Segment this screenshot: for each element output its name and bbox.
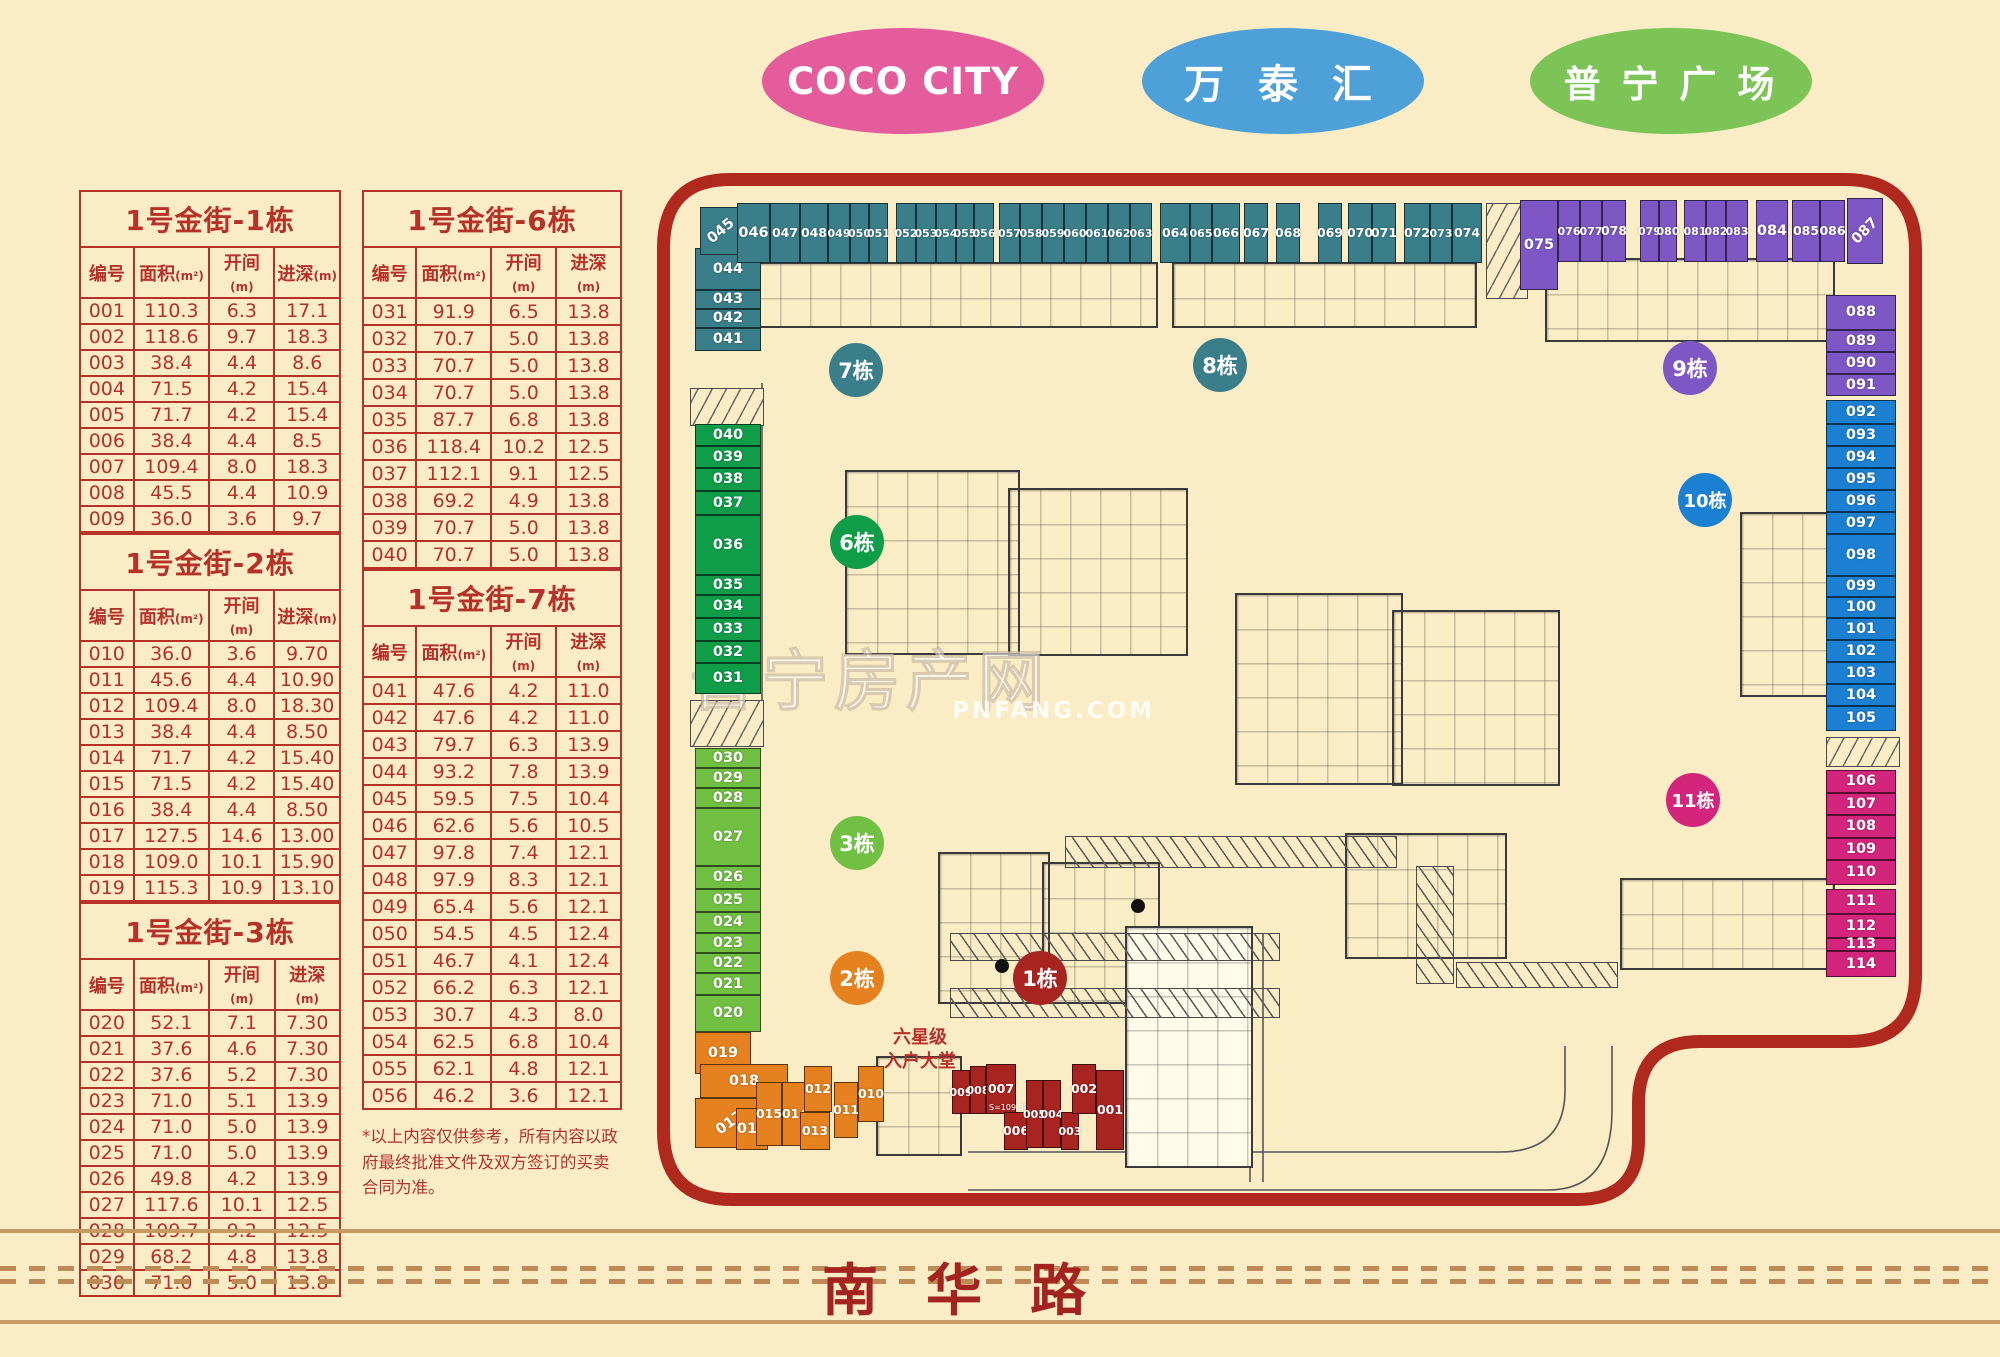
table-row: 02649.84.213.9 <box>80 1166 340 1192</box>
table-row: 04070.75.013.8 <box>363 541 621 568</box>
table-row: 019115.310.913.10 <box>80 875 340 901</box>
table-cell: 15.40 <box>274 745 340 771</box>
table-row: 03470.75.013.8 <box>363 379 621 406</box>
shop-unit-047: 047 <box>770 203 800 263</box>
building-footprint <box>1740 512 1832 697</box>
shop-unit-048: 048 <box>800 203 828 263</box>
shop-unit-041: 041 <box>695 328 761 351</box>
column-header: 进深(m) <box>556 626 621 677</box>
shop-unit-060: 060 <box>1064 203 1086 263</box>
shop-unit-081: 081 <box>1684 200 1706 262</box>
column-header: 进深(m) <box>275 959 340 1010</box>
column-header: 编号 <box>363 626 416 677</box>
table-cell: 18.30 <box>274 693 340 719</box>
shop-unit-058: 058 <box>1020 203 1042 263</box>
shop-unit-number: 111 <box>1846 894 1876 909</box>
table-cell: 46.2 <box>416 1082 491 1109</box>
table-row: 01338.44.48.50 <box>80 719 340 745</box>
table-cell: 4.5 <box>491 920 556 947</box>
building-circle-b8: 8栋 <box>1193 338 1247 392</box>
shop-unit-number: 100 <box>1846 600 1876 615</box>
table-cell: 37.6 <box>134 1036 210 1062</box>
table-cell: 45.6 <box>134 667 209 693</box>
table-cell: 62.6 <box>416 812 491 839</box>
table-cell: 13.10 <box>274 875 340 901</box>
shop-unit-number: 010 <box>858 1088 884 1101</box>
table-cell: 15.40 <box>274 771 340 797</box>
table-cell: 8.50 <box>274 797 340 823</box>
table-cell: 70.7 <box>416 379 491 406</box>
table-cell: 12.1 <box>556 893 621 920</box>
table-cell: 7.8 <box>491 758 556 785</box>
shop-unit-064: 064 <box>1160 203 1190 263</box>
table-cell: 46.7 <box>416 947 491 974</box>
lobby-line1: 六星级 <box>860 1026 980 1050</box>
table-cell: 71.0 <box>134 1088 210 1114</box>
table-cell: 13.9 <box>556 731 621 758</box>
table-row: 05146.74.112.4 <box>363 947 621 974</box>
shop-unit-number: 019 <box>708 1046 738 1061</box>
building-footprint <box>1620 878 1835 970</box>
shop-unit-035: 035 <box>695 575 761 595</box>
shop-unit-number: 060 <box>1064 228 1087 239</box>
table-cell: 4.1 <box>491 947 556 974</box>
table-cell: 040 <box>363 541 416 568</box>
table-cell: 93.2 <box>416 758 491 785</box>
shop-unit-number: 082 <box>1705 226 1728 237</box>
table-cell: 12.1 <box>556 974 621 1001</box>
table-cell: 54.5 <box>416 920 491 947</box>
table-cell: 052 <box>363 974 416 1001</box>
table-cell: 034 <box>363 379 416 406</box>
building-circle-label: 10栋 <box>1683 487 1726 513</box>
table-row: 02371.05.113.9 <box>80 1088 340 1114</box>
table-cell: 65.4 <box>416 893 491 920</box>
table-row: 002118.69.718.3 <box>80 324 340 350</box>
table-cell: 12.1 <box>556 1082 621 1109</box>
shop-unit-023: 023 <box>695 933 761 953</box>
table-row: 04897.98.312.1 <box>363 866 621 893</box>
table-cell: 10.4 <box>556 785 621 812</box>
table-cell: 15.4 <box>274 402 340 428</box>
table-cell: 5.0 <box>209 1114 274 1140</box>
shop-unit-number: 031 <box>713 671 743 686</box>
table-row: 04965.45.612.1 <box>363 893 621 920</box>
shop-unit-number: 058 <box>1020 228 1043 239</box>
table-cell: 91.9 <box>416 298 491 325</box>
table-cell: 13.8 <box>556 406 621 433</box>
building-footprint <box>1545 258 1835 342</box>
table-cell: 10.9 <box>209 875 274 901</box>
table-cell: 47.6 <box>416 704 491 731</box>
shop-unit-number: 097 <box>1846 516 1876 531</box>
table-cell: 38.4 <box>134 350 210 376</box>
shop-unit-number: 074 <box>1454 227 1480 240</box>
table-row: 01036.03.69.70 <box>80 641 340 667</box>
table-cell: 4.2 <box>209 376 274 402</box>
table-cell: 014 <box>80 745 134 771</box>
shop-unit-number: 063 <box>1130 228 1153 239</box>
landmark-label: 万 泰 汇 <box>1184 52 1382 110</box>
shop-unit-029: 029 <box>695 768 761 788</box>
tables-column-mid: 1号金街-6栋编号面积(m²)开间(m)进深(m)03191.96.513.80… <box>362 190 622 1201</box>
shop-unit-number: 021 <box>713 977 743 992</box>
shop-unit-087: 087 <box>1847 198 1883 264</box>
shop-unit-103: 103 <box>1826 662 1896 684</box>
table-cell: 001 <box>80 298 134 324</box>
shop-unit-011: 011 <box>834 1082 858 1138</box>
table-row: 04797.87.412.1 <box>363 839 621 866</box>
table-cell: 10.90 <box>274 667 340 693</box>
shop-unit-015: 015 <box>756 1082 782 1146</box>
table-cell: 117.6 <box>134 1192 210 1218</box>
table-row: 03191.96.513.8 <box>363 298 621 325</box>
shop-unit-010: 010 <box>858 1066 884 1122</box>
shop-unit-number: 099 <box>1846 579 1876 594</box>
shop-unit-number: 033 <box>713 622 743 637</box>
building-circle-label: 11栋 <box>1671 787 1714 813</box>
table-cell: 38.4 <box>134 428 210 454</box>
table-cell: 6.3 <box>491 974 556 1001</box>
table-row: 04247.64.211.0 <box>363 704 621 731</box>
ramp <box>690 388 764 426</box>
table-cell: 13.8 <box>556 325 621 352</box>
table-cell: 051 <box>363 947 416 974</box>
shop-unit-number: 037 <box>713 496 743 511</box>
shop-unit-083: 083 <box>1726 200 1748 262</box>
column-header: 面积(m²) <box>416 247 491 298</box>
shop-unit-number: 035 <box>713 578 743 593</box>
table-cell: 4.6 <box>209 1036 274 1062</box>
table-row: 017127.514.613.00 <box>80 823 340 849</box>
shop-unit-008: 008 <box>970 1066 986 1114</box>
shop-unit-number: 070 <box>1347 227 1373 240</box>
table-row: 01471.74.215.40 <box>80 745 340 771</box>
table-cell: 056 <box>363 1082 416 1109</box>
table-cell: 5.6 <box>491 893 556 920</box>
shop-unit-number: 109 <box>1846 842 1876 857</box>
shop-unit-114: 114 <box>1826 951 1896 977</box>
table-row: 03869.24.913.8 <box>363 487 621 514</box>
table-cell: 6.5 <box>491 298 556 325</box>
shop-unit-091: 091 <box>1826 374 1896 396</box>
table-cell: 13.8 <box>556 352 621 379</box>
table-cell: 008 <box>80 480 134 506</box>
table-cell: 118.6 <box>134 324 210 350</box>
shop-unit-033: 033 <box>695 618 761 641</box>
parking-hatch <box>950 933 1280 961</box>
table-cell: 049 <box>363 893 416 920</box>
table-cell: 38.4 <box>134 719 209 745</box>
shop-unit-number: 018 <box>729 1074 759 1089</box>
table-cell: 4.2 <box>209 402 274 428</box>
shop-unit-number: 036 <box>713 538 743 553</box>
parking-hatch <box>1065 836 1397 868</box>
shop-unit-093: 093 <box>1826 424 1896 446</box>
shop-unit-number: 026 <box>713 870 743 885</box>
shop-unit-065: 065 <box>1190 203 1212 263</box>
table-cell: 4.2 <box>491 677 556 704</box>
table-cell: 127.5 <box>134 823 209 849</box>
shop-unit-number: 027 <box>713 830 743 845</box>
table-cell: 11.0 <box>556 677 621 704</box>
shop-unit-number: 072 <box>1404 227 1430 240</box>
shop-unit-number: 091 <box>1846 378 1876 393</box>
table-cell: 4.4 <box>209 350 274 376</box>
table-cell: 62.1 <box>416 1055 491 1082</box>
shop-unit-038: 038 <box>695 468 761 491</box>
table-cell: 4.4 <box>209 797 274 823</box>
table-cell: 118.4 <box>416 433 491 460</box>
table-cell: 71.5 <box>134 771 209 797</box>
column-header: 面积(m²) <box>416 626 491 677</box>
table-row: 02237.65.27.30 <box>80 1062 340 1088</box>
building-circle-b11: 11栋 <box>1666 773 1720 827</box>
table-row: 02471.05.013.9 <box>80 1114 340 1140</box>
table-cell: 050 <box>363 920 416 947</box>
shop-unit-022: 022 <box>695 953 761 973</box>
table-cell: 109.4 <box>134 454 210 480</box>
table-cell: 015 <box>80 771 134 797</box>
table-cell: 007 <box>80 454 134 480</box>
shop-unit-071: 071 <box>1372 203 1396 263</box>
shop-unit-number: 096 <box>1846 494 1876 509</box>
table-cell: 66.2 <box>416 974 491 1001</box>
shop-unit-110: 110 <box>1826 860 1896 885</box>
table-cell: 9.7 <box>274 506 340 532</box>
table-cell: 4.2 <box>209 771 274 797</box>
column-header: 编号 <box>80 590 134 641</box>
table-row: 02571.05.013.9 <box>80 1140 340 1166</box>
building-footprint <box>1235 593 1403 785</box>
building-circle-label: 8栋 <box>1202 350 1238 380</box>
table-cell: 5.0 <box>491 541 556 568</box>
shop-unit-113: 113 <box>1826 938 1896 951</box>
shop-unit-number: 024 <box>713 915 743 930</box>
table-cell: 016 <box>80 797 134 823</box>
building-circle-label: 2栋 <box>839 963 875 993</box>
table-title: 1号金街-1栋 <box>79 190 341 246</box>
landmark-label: 普 宁 广 场 <box>1564 54 1779 108</box>
landmark-coco-city: COCO CITY <box>762 28 1044 134</box>
table-cell: 055 <box>363 1055 416 1082</box>
table-cell: 027 <box>80 1192 134 1218</box>
table-cell: 053 <box>363 1001 416 1028</box>
disclaimer-footnote: *以上内容仅供参考，所有内容以政府最终批准文件及双方签订的买卖合同为准。 <box>362 1124 622 1201</box>
table-cell: 7.30 <box>275 1010 340 1036</box>
road-name: 南华路 <box>822 1246 1134 1327</box>
building-circle-b1: 1栋 <box>1013 951 1067 1005</box>
table-cell: 12.5 <box>275 1192 340 1218</box>
table-row: 036118.410.212.5 <box>363 433 621 460</box>
table-cell: 041 <box>363 677 416 704</box>
table-cell: 3.6 <box>491 1082 556 1109</box>
building-circle-label: 7栋 <box>838 355 874 385</box>
shop-unit-number: 088 <box>1846 305 1876 320</box>
table-cell: 18.3 <box>274 454 340 480</box>
table-row: 04147.64.211.0 <box>363 677 621 704</box>
table-row: 018109.010.115.90 <box>80 849 340 875</box>
table-cell: 70.7 <box>416 352 491 379</box>
table-cell: 69.2 <box>416 487 491 514</box>
shop-unit-number: 083 <box>1726 226 1749 237</box>
shop-unit-096: 096 <box>1826 490 1896 512</box>
column-header: 编号 <box>80 959 134 1010</box>
table-cell: 3.6 <box>209 641 274 667</box>
shop-unit-051: 051 <box>869 203 888 263</box>
table-row: 03970.75.013.8 <box>363 514 621 541</box>
column-header: 开间(m) <box>209 590 274 641</box>
shop-unit-057: 057 <box>999 203 1020 263</box>
table-cell: 17.1 <box>274 298 340 324</box>
shop-unit-number: 025 <box>713 893 743 908</box>
shop-unit-number: 102 <box>1846 644 1876 659</box>
building-footprint <box>1392 610 1560 786</box>
table-row: 04559.57.510.4 <box>363 785 621 812</box>
shop-unit-number: 078 <box>1601 225 1627 238</box>
building-footprint <box>1172 262 1477 328</box>
table-cell: 13.9 <box>275 1114 340 1140</box>
table-cell: 038 <box>363 487 416 514</box>
table-cell: 003 <box>80 350 134 376</box>
shop-unit-number: 022 <box>713 956 743 971</box>
table-row: 05646.23.612.1 <box>363 1082 621 1109</box>
table-cell: 047 <box>363 839 416 866</box>
watermark-subtext: PNFANG.COM <box>952 698 1155 724</box>
table-cell: 13.8 <box>556 487 621 514</box>
table-cell: 30.7 <box>416 1001 491 1028</box>
table-cell: 13.9 <box>556 758 621 785</box>
table-row: 00571.74.215.4 <box>80 402 340 428</box>
column-header: 面积(m²) <box>134 590 209 641</box>
table-row: 04379.76.313.9 <box>363 731 621 758</box>
shop-unit-number: 048 <box>801 227 827 240</box>
shop-unit-099: 099 <box>1826 576 1896 597</box>
shop-unit-109: 109 <box>1826 838 1896 860</box>
column-header: 开间(m) <box>491 626 556 677</box>
table-cell: 4.4 <box>209 667 274 693</box>
shop-unit-004: 004 <box>1043 1080 1061 1148</box>
shop-unit-number: 029 <box>713 771 743 786</box>
table-cell: 37.6 <box>134 1062 210 1088</box>
shop-unit-076: 076 <box>1558 200 1580 262</box>
shop-unit-number: 032 <box>713 645 743 660</box>
shop-unit-013: 013 <box>800 1112 830 1150</box>
shop-unit-number: 095 <box>1846 472 1876 487</box>
shop-unit-045: 045 <box>700 207 742 255</box>
table-cell: 004 <box>80 376 134 402</box>
shop-unit-number: 077 <box>1580 226 1603 237</box>
tree-dot <box>1131 899 1145 913</box>
shop-unit-number: 112 <box>1846 919 1876 934</box>
table-cell: 110.3 <box>134 298 210 324</box>
table-row: 05462.56.810.4 <box>363 1028 621 1055</box>
table-cell: 10.1 <box>209 1192 274 1218</box>
table-row: 03370.75.013.8 <box>363 352 621 379</box>
table-cell: 13.9 <box>275 1088 340 1114</box>
shop-unit-number: 108 <box>1846 819 1876 834</box>
shop-unit-number: 051 <box>867 228 890 239</box>
shop-unit-039: 039 <box>695 446 761 468</box>
table-row: 027117.610.112.5 <box>80 1192 340 1218</box>
table-row: 04662.65.610.5 <box>363 812 621 839</box>
table-cell: 8.0 <box>209 693 274 719</box>
table-cell: 13.8 <box>556 541 621 568</box>
shop-unit-025: 025 <box>695 889 761 912</box>
table-cell: 62.5 <box>416 1028 491 1055</box>
table-cell: 024 <box>80 1114 134 1140</box>
shop-unit-number: 092 <box>1846 405 1876 420</box>
shop-unit-number: 059 <box>1042 228 1065 239</box>
table-cell: 7.1 <box>209 1010 274 1036</box>
table-cell: 109.4 <box>134 693 209 719</box>
table-cell: 12.1 <box>556 1055 621 1082</box>
table-cell: 6.8 <box>491 1028 556 1055</box>
shop-unit-055: 055 <box>956 203 974 263</box>
shop-unit-104: 104 <box>1826 684 1896 706</box>
table-title: 1号金街-3栋 <box>79 902 341 958</box>
shop-unit-number: 047 <box>772 227 798 240</box>
shop-unit-070: 070 <box>1348 203 1372 263</box>
table-cell: 12.4 <box>556 920 621 947</box>
shop-unit-number: 098 <box>1846 548 1876 563</box>
table-cell: 025 <box>80 1140 134 1166</box>
shop-unit-080: 080 <box>1659 200 1677 262</box>
table-cell: 013 <box>80 719 134 745</box>
shop-unit-number: 042 <box>713 311 743 326</box>
shop-unit-002: 002 <box>1072 1064 1096 1114</box>
table-cell: 6.3 <box>209 298 274 324</box>
table-cell: 112.1 <box>416 460 491 487</box>
shop-unit-number: 113 <box>1846 937 1876 952</box>
table-row: 01145.64.410.90 <box>80 667 340 693</box>
table-cell: 71.7 <box>134 745 209 771</box>
shop-unit-number: 038 <box>713 472 743 487</box>
shop-unit-number: 068 <box>1275 227 1301 240</box>
shop-unit-number: 003 <box>1059 1126 1082 1137</box>
table-cell: 10.9 <box>274 480 340 506</box>
shop-unit-number: 043 <box>713 292 743 307</box>
table-row: 05266.26.312.1 <box>363 974 621 1001</box>
shop-unit-number: 105 <box>1846 711 1876 726</box>
shop-unit-number: 084 <box>1757 224 1787 239</box>
table-cell: 019 <box>80 875 134 901</box>
table-cell: 4.3 <box>491 1001 556 1028</box>
table-cell: 97.8 <box>416 839 491 866</box>
road-edge-line <box>0 1229 2000 1233</box>
shop-unit-number: 110 <box>1846 865 1876 880</box>
shop-unit-001: 001 <box>1096 1070 1124 1150</box>
shop-unit-097: 097 <box>1826 512 1896 534</box>
table-cell: 046 <box>363 812 416 839</box>
table-cell: 036 <box>363 433 416 460</box>
building-circle-b10: 10栋 <box>1678 473 1732 527</box>
shop-unit-number: 012 <box>805 1083 831 1096</box>
parking-hatch <box>1416 866 1454 984</box>
shop-unit-number: 106 <box>1846 774 1876 789</box>
shop-unit-number: 071 <box>1371 227 1397 240</box>
table-cell: 009 <box>80 506 134 532</box>
table-row: 05562.14.812.1 <box>363 1055 621 1082</box>
facility-building <box>1125 926 1253 1168</box>
table-cell: 044 <box>363 758 416 785</box>
table-cell: 70.7 <box>416 514 491 541</box>
table-cell: 023 <box>80 1088 134 1114</box>
table-cell: 045 <box>363 785 416 812</box>
table-row: 05054.54.512.4 <box>363 920 621 947</box>
shop-unit-number: 061 <box>1086 228 1109 239</box>
shop-unit-number: 080 <box>1657 226 1680 237</box>
